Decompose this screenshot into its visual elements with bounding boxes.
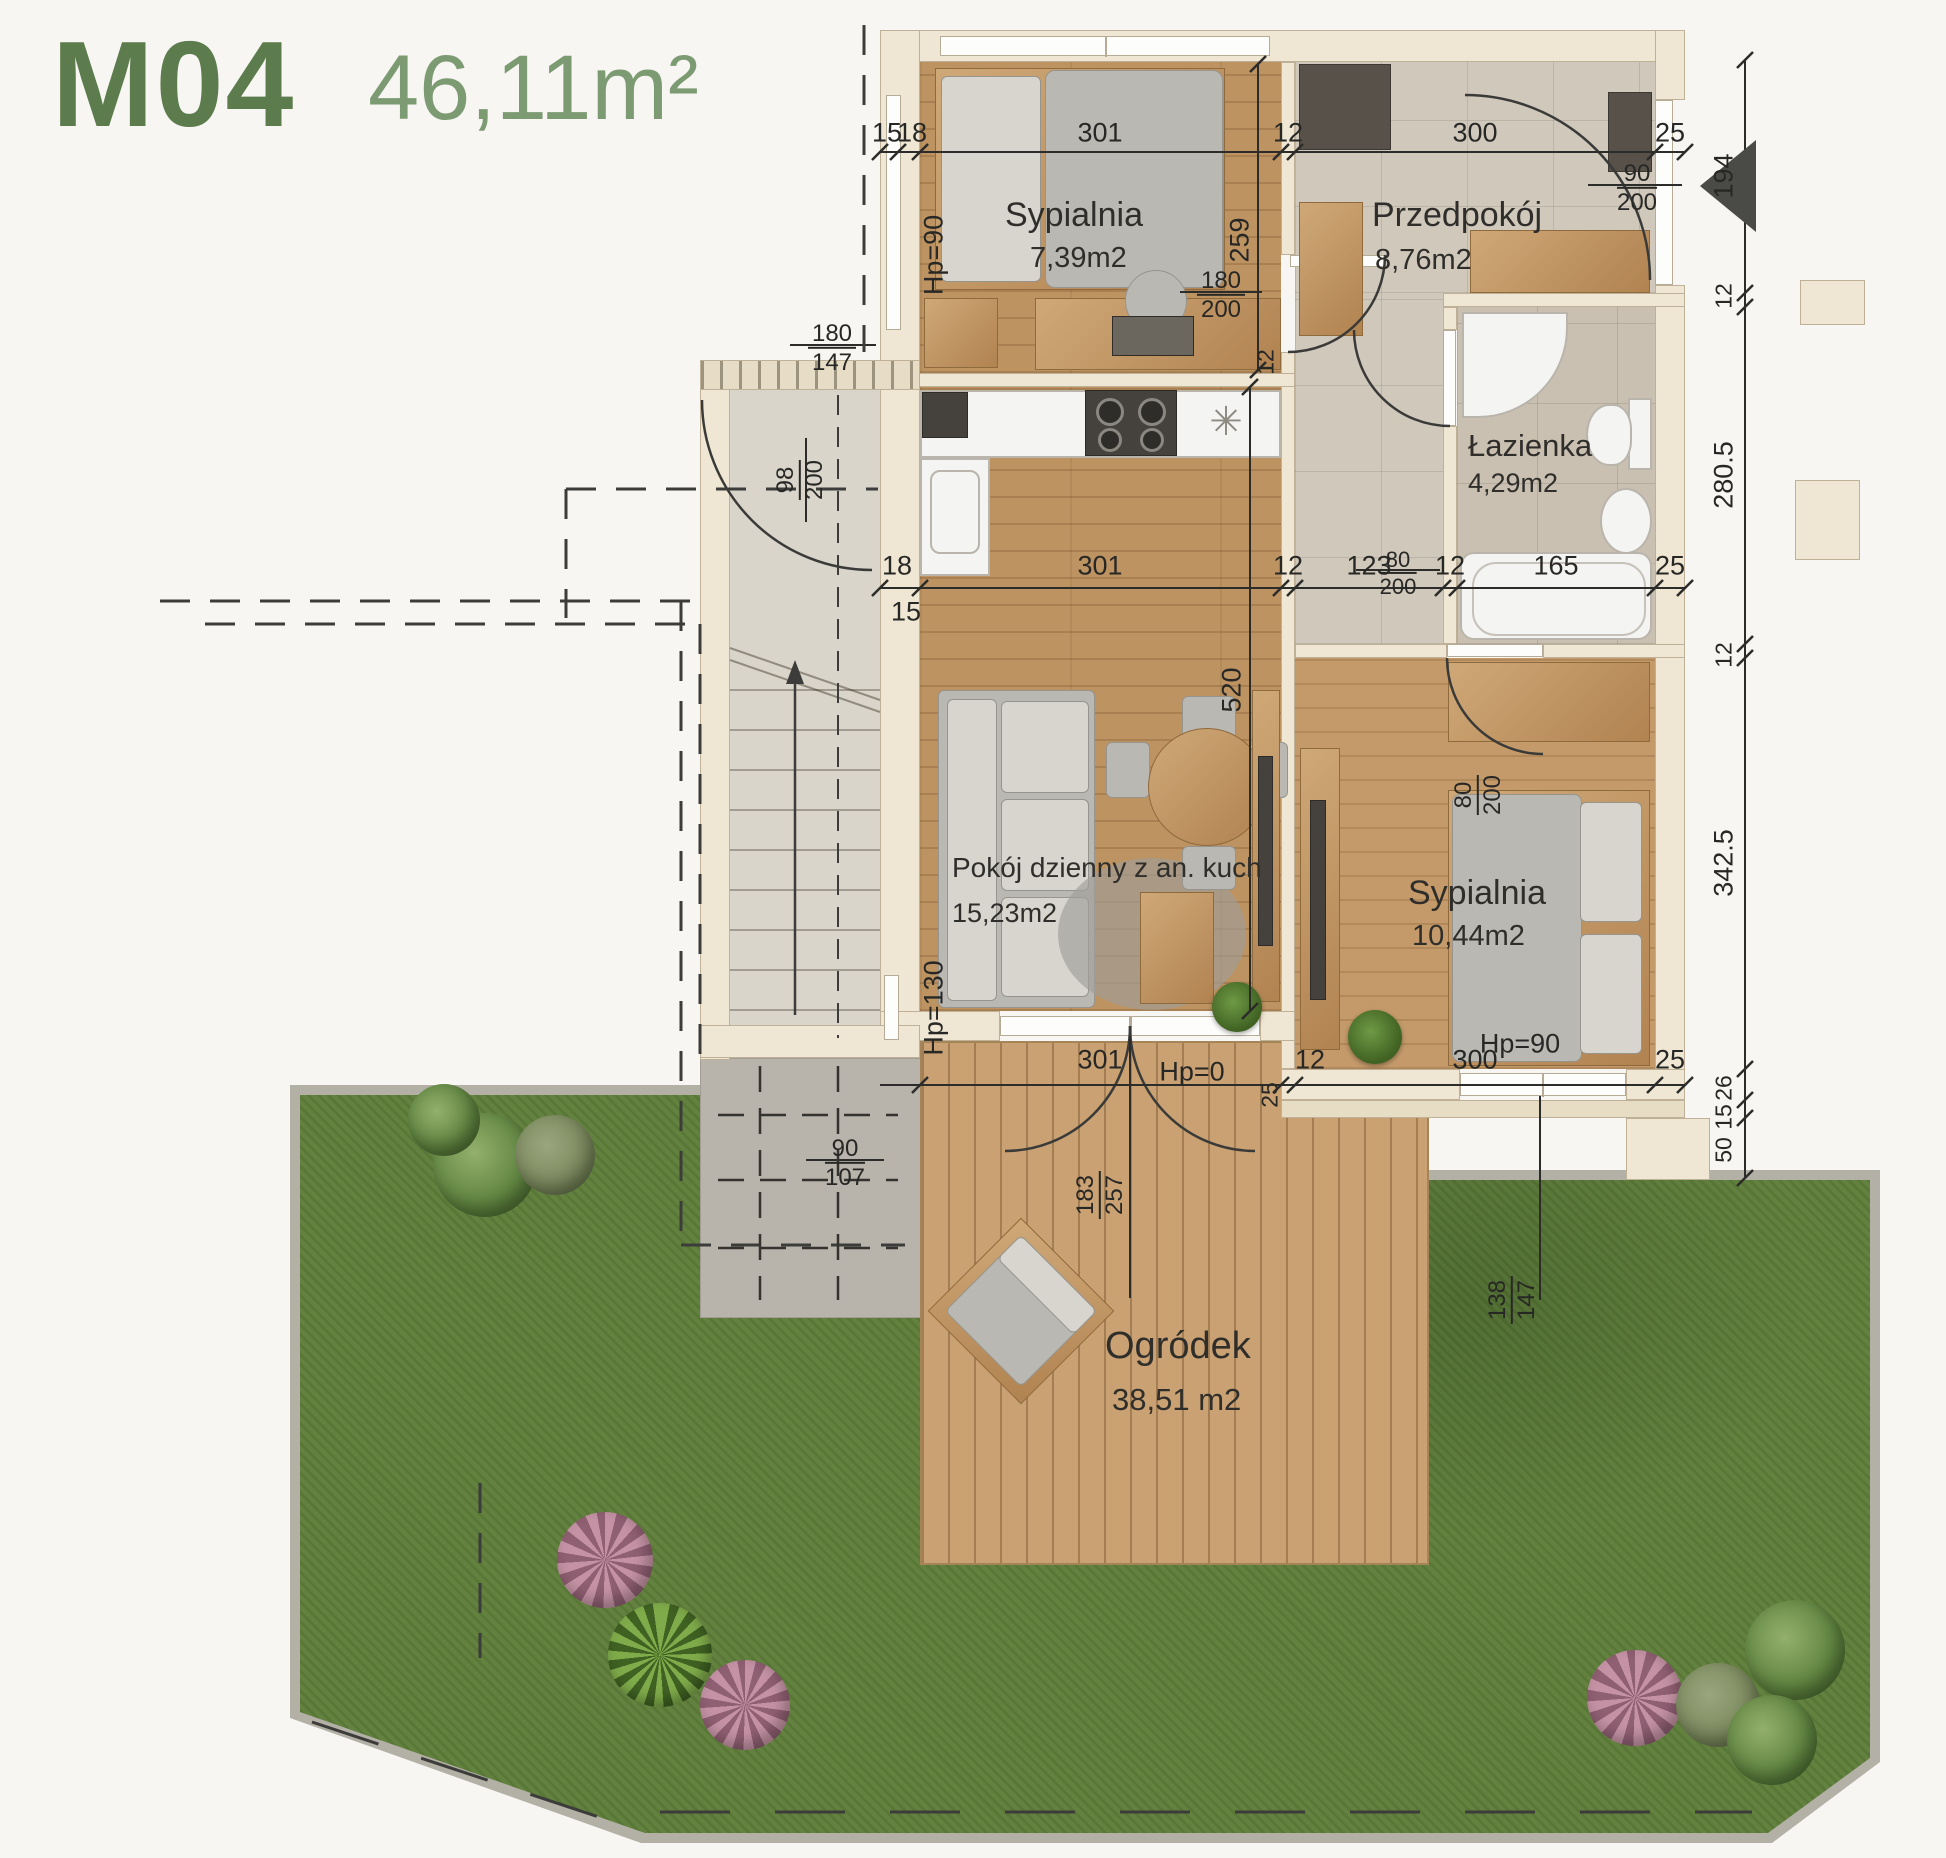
bed2-pillow [1580, 802, 1642, 922]
bedroom1-door-size: 180200 [1197, 268, 1245, 322]
garden-label: Ogródek [1105, 1325, 1251, 1368]
wall-bathroom-west-b [1443, 426, 1457, 644]
coffee-table [1140, 892, 1214, 1004]
entrance-door-size: 90200 [1617, 161, 1657, 215]
dim-kitchen-12: 12 [1253, 349, 1280, 375]
terrace-door-size: 183257 [1073, 1171, 1127, 1219]
bathroom-door-size: 80200 [1380, 548, 1417, 598]
dim-top-301: 301 [1077, 118, 1122, 149]
bedroom2-window-hp: Hp=90 [1480, 1029, 1560, 1060]
wall-east-upper [1655, 30, 1685, 100]
dim-bot-12: 12 [1295, 1045, 1325, 1076]
entry-closet [1470, 230, 1650, 293]
dim-mid-18: 18 [882, 551, 912, 582]
hallway-vent-shaft [1299, 64, 1391, 150]
dining-chair [1106, 742, 1150, 798]
hallway-area-label: 8,76m2 [1375, 244, 1472, 277]
bathroom-sink [1600, 488, 1652, 554]
kitchen-vent-symbol: ✳ [1209, 399, 1243, 445]
dim-right-280.5: 280.5 [1709, 441, 1740, 509]
neighbour-wall-stub [1800, 280, 1865, 325]
stairwell-door-size: 98200 [773, 460, 827, 500]
dim-right-12b: 12 [1711, 642, 1738, 668]
living-window-hp: Hp=130 [919, 960, 950, 1055]
kitchen-sink [930, 470, 980, 554]
kitchen-stove [1085, 390, 1177, 456]
dim-mid-165: 165 [1533, 551, 1578, 582]
dim-top-18: 18 [897, 118, 927, 149]
unit-total-area: 46,11m² [368, 36, 699, 141]
wall-bedroom2-north-a [1295, 644, 1447, 658]
bed2-pillow [1580, 934, 1642, 1054]
terrace-door-hp: Hp=0 [1159, 1057, 1224, 1088]
garden-area-label: 38,51 m2 [1112, 1382, 1241, 1418]
bedroom2-window [1460, 1073, 1626, 1096]
laptop [1112, 316, 1194, 356]
dim-right-50: 50 [1711, 1137, 1738, 1163]
wall-bedroom1-south [880, 373, 1295, 387]
wall-bedroom2-north-b [1543, 644, 1685, 658]
bedroom2-door-size: 80200 [1451, 775, 1505, 815]
floor-plan-page: M04 46,11m² Ogródek 38,51 m2 [0, 0, 1946, 1858]
garden-flower-bush [1587, 1650, 1683, 1746]
dim-right-15: 15 [1711, 1104, 1738, 1130]
wall-bathroom-north [1443, 293, 1685, 307]
wall-partition-lower [1281, 352, 1295, 1069]
bedroom1-window-hp: Hp=90 [919, 215, 950, 295]
living-label: Pokój dzienny z an. kuch [952, 852, 1262, 884]
garden-wall-corner [1626, 1118, 1710, 1180]
bed2-wardrobe [1448, 662, 1650, 742]
bed1-dresser [924, 298, 998, 368]
bedroom1-label: Sypialnia [1005, 196, 1143, 235]
dim-bot-25rot: 25 [1257, 1082, 1284, 1108]
dim-top-25: 25 [1655, 118, 1685, 149]
bedroom1-area-label: 7,39m2 [1030, 242, 1127, 275]
dim-mid-25: 25 [1655, 551, 1685, 582]
garden-bush [1745, 1600, 1845, 1700]
garden-flower-bush [700, 1660, 790, 1750]
bedroom2-window-size: 138147 [1485, 1276, 1539, 1324]
living-west-window [884, 975, 899, 1040]
dim-right-342.5: 342.5 [1709, 829, 1740, 897]
dining-table [1148, 728, 1266, 846]
dim-bot-301: 301 [1077, 1045, 1122, 1076]
wall-partition-upper [1281, 62, 1295, 255]
bedroom1-north-window [940, 36, 1270, 56]
bathroom-area-label: 4,29m2 [1468, 468, 1558, 499]
garden-bush [515, 1115, 595, 1195]
wall-bathroom-west-a [1443, 307, 1457, 330]
dim-top-12: 12 [1273, 118, 1303, 149]
tv-screen [1258, 756, 1273, 946]
kitchen-small-appliance [922, 392, 968, 438]
dim-right-12a: 12 [1711, 283, 1738, 309]
toilet-bowl [1586, 404, 1632, 466]
dim-right-26: 26 [1711, 1075, 1738, 1101]
bathroom-label: Łazienka [1468, 428, 1592, 464]
dim-mid-12b: 12 [1435, 551, 1465, 582]
bedroom2-label: Sypialnia [1408, 874, 1546, 913]
garden-flower-bush [557, 1512, 653, 1608]
dim-bedroom1-259: 259 [1225, 217, 1256, 262]
wall-living-south-b [1260, 1011, 1295, 1041]
bedroom1-window-size: 180147 [808, 321, 856, 375]
unit-id-title: M04 [52, 14, 295, 154]
wall-south-step [1281, 1100, 1685, 1118]
hallway-label: Przedpokój [1372, 196, 1542, 235]
bathroom-door-leaf [1443, 330, 1456, 426]
dim-mid-15: 15 [891, 597, 921, 628]
entry-pavement [700, 1058, 922, 1318]
bed1-pillow [941, 76, 1041, 282]
dim-top-300: 300 [1452, 118, 1497, 149]
stairwell-wall-west [700, 360, 730, 1060]
indoor-plant [1348, 1010, 1402, 1064]
dim-right-194: 194 [1709, 153, 1740, 198]
living-area-label: 15,23m2 [952, 898, 1057, 929]
bed2-tv-screen [1310, 800, 1326, 1000]
dim-living-520: 520 [1217, 667, 1248, 712]
hallway-cabinet [1299, 202, 1363, 336]
neighbour-wall-stub [1795, 480, 1860, 560]
bedroom2-door-leaf [1447, 644, 1543, 657]
dim-mid-12a: 12 [1273, 551, 1303, 582]
indoor-plant [1212, 982, 1262, 1032]
corridor-floor [1295, 293, 1443, 644]
garden-yucca [608, 1603, 712, 1707]
wall-east [1655, 285, 1685, 1100]
dim-bot-25: 25 [1655, 1045, 1685, 1076]
garden-bush [1727, 1695, 1817, 1785]
dim-mid-301: 301 [1077, 551, 1122, 582]
garden-bush [408, 1084, 480, 1156]
living-window-size: 90107 [825, 1136, 865, 1190]
bedroom2-area-label: 10,44m2 [1412, 920, 1525, 953]
